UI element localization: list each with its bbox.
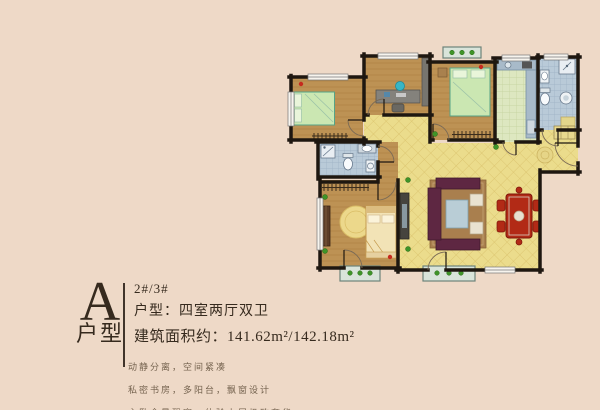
coffee-table-icon <box>446 200 468 228</box>
block-numbers: 2#/3# <box>134 281 355 297</box>
armchair-icon <box>470 194 483 206</box>
toilet-icon <box>343 154 353 158</box>
plant-icon <box>348 271 353 276</box>
unit-type-label: 户型 <box>72 316 128 348</box>
window <box>485 267 515 273</box>
plant-icon <box>406 247 411 252</box>
feature-line: 动静分离，空间紧凑 <box>128 360 293 373</box>
sink-icon <box>505 62 511 68</box>
bed-icon <box>366 206 396 258</box>
armchair-icon <box>470 222 483 234</box>
window <box>502 55 530 61</box>
sofa-icon <box>428 178 486 250</box>
layout-line: 户型：四室两厅双卫 <box>134 300 355 320</box>
nightstand-icon <box>438 68 447 77</box>
window <box>288 92 294 126</box>
shoe-cabinet-icon <box>554 126 575 139</box>
globe-icon <box>396 82 405 91</box>
plant-icon <box>323 195 328 200</box>
feature-list: 动静分离，空间紧凑 私密书房，多阳台，飘窗设计 主卧全景飘窗，体验上层极致奢华 <box>128 360 293 410</box>
red-dot-icon <box>299 82 303 86</box>
hallway <box>364 115 430 143</box>
plant-icon <box>450 50 455 55</box>
plant-icon <box>494 145 499 150</box>
window <box>317 198 323 250</box>
feature-line: 主卧全景飘窗，体验上层极致奢华 <box>128 406 293 410</box>
plant-icon <box>368 271 373 276</box>
plant-icon <box>433 132 438 137</box>
stove-icon <box>522 62 532 69</box>
red-dot-icon <box>479 65 483 69</box>
chair-icon <box>392 104 404 112</box>
floor-medallion <box>537 147 553 163</box>
plant-icon <box>470 50 475 55</box>
window <box>378 53 418 59</box>
plant-icon <box>406 178 411 183</box>
divider-rule <box>123 283 125 367</box>
window <box>544 54 568 60</box>
floorplan <box>278 0 590 300</box>
plant-icon <box>323 249 328 254</box>
plant-icon <box>460 50 465 55</box>
plant-icon <box>358 271 363 276</box>
window <box>308 74 348 80</box>
chair-icon <box>497 200 505 211</box>
bed-icon <box>294 92 335 125</box>
bath-mat <box>561 117 575 127</box>
fridge-icon <box>527 120 535 134</box>
red-dot-icon <box>388 255 392 259</box>
plant-icon <box>435 271 440 276</box>
chair-icon <box>497 221 505 232</box>
corridor-kitchen <box>495 142 540 172</box>
unit-info: 2#/3# 户型：四室两厅双卫 建筑面积约：141.62m²/142.18m² <box>134 281 355 346</box>
feature-line: 私密书房，多阳台，飘窗设计 <box>128 383 293 396</box>
area-line: 建筑面积约：141.62m²/142.18m² <box>134 325 355 346</box>
toilet-icon <box>540 88 550 93</box>
flyer-page: A 户型 2#/3# 户型：四室两厅双卫 建筑面积约：141.62m²/142.… <box>0 0 600 410</box>
